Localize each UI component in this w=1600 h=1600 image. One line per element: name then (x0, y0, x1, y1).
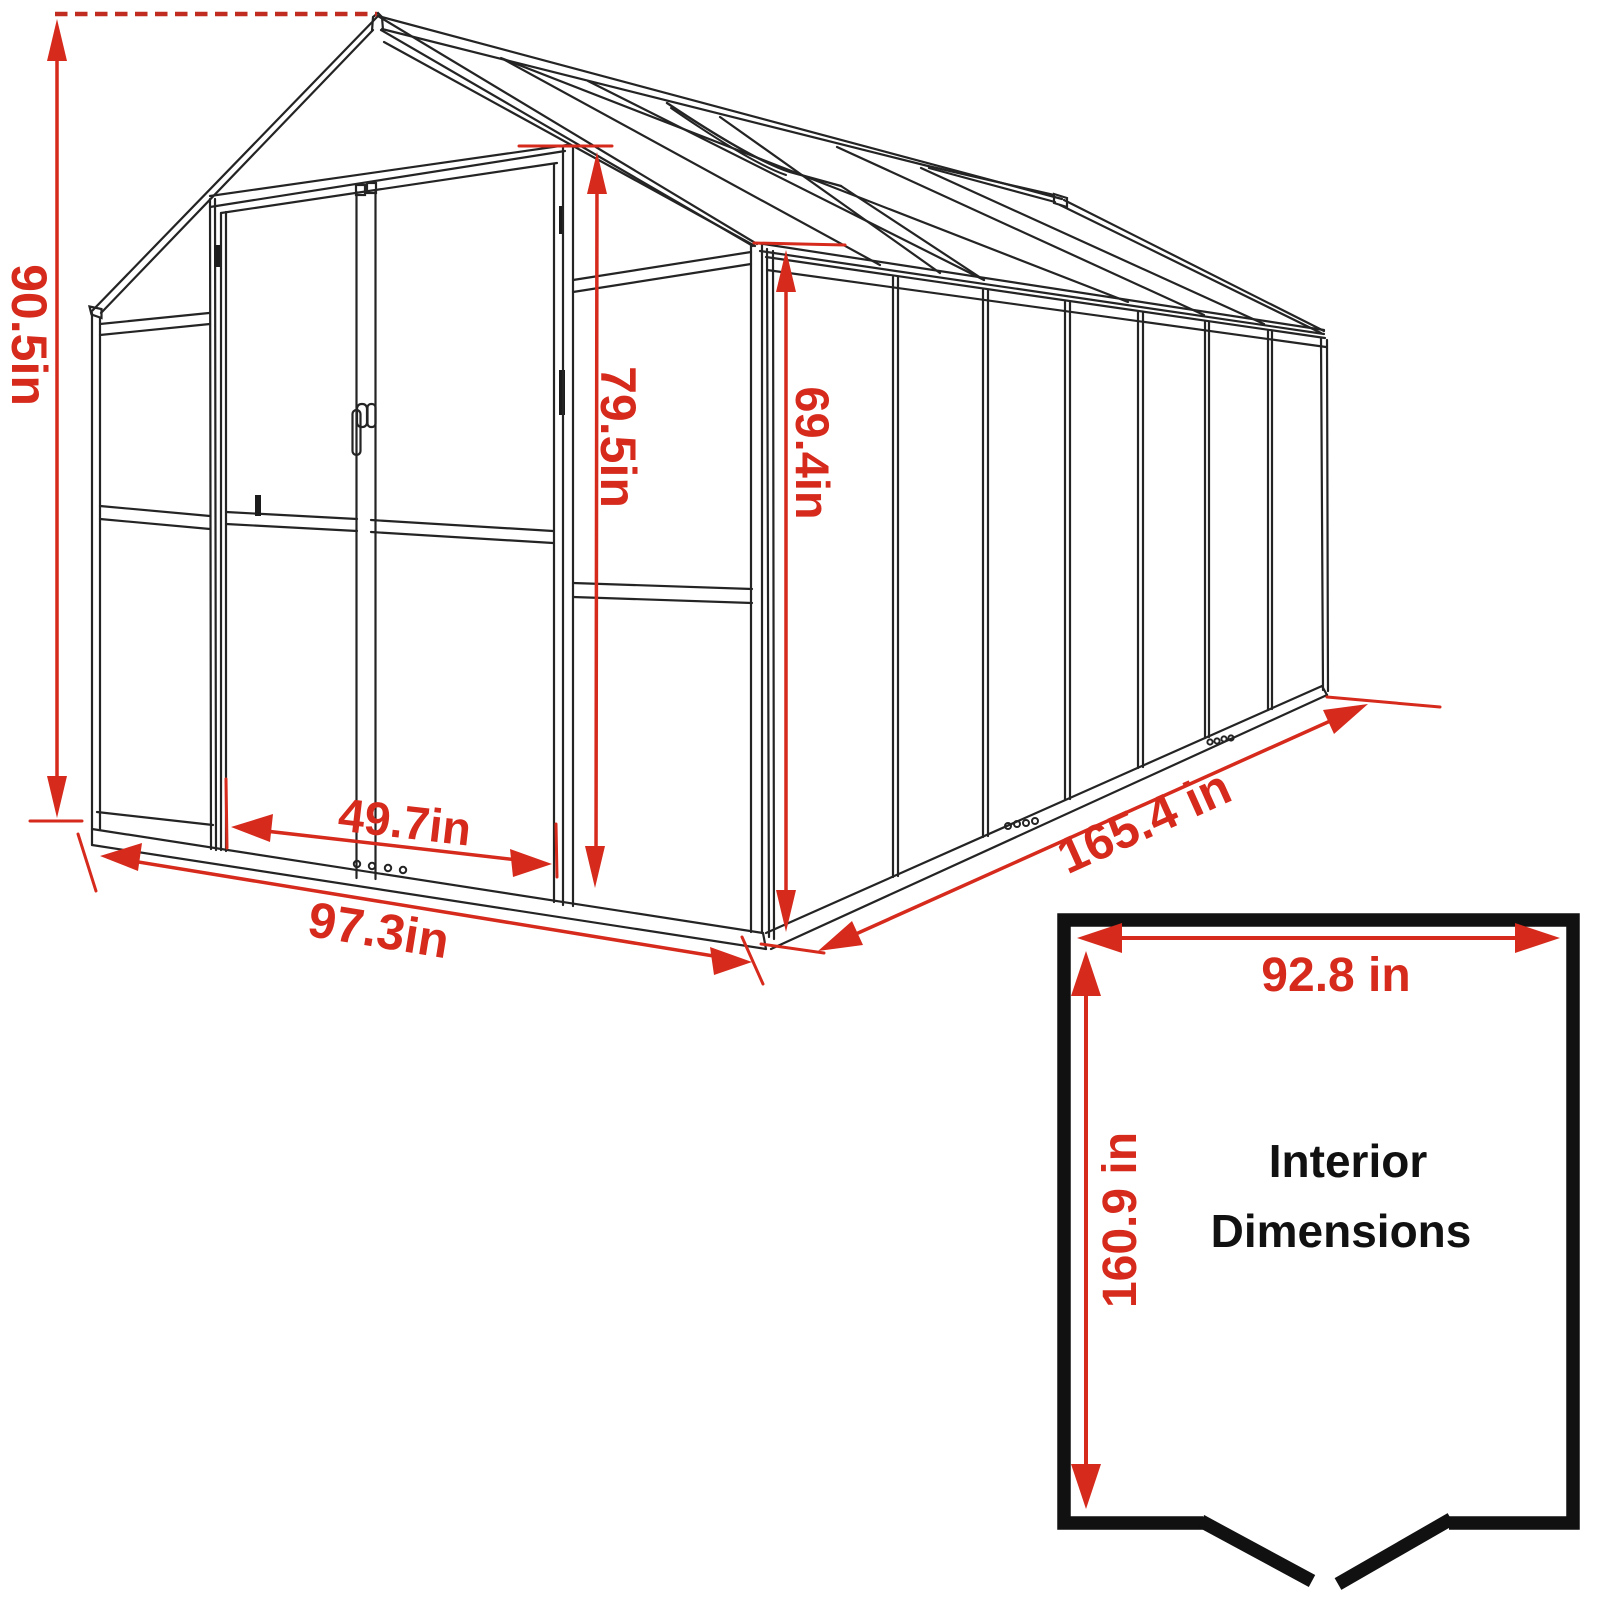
svg-text:165.4 in: 165.4 in (1049, 758, 1239, 884)
svg-text:Dimensions: Dimensions (1211, 1205, 1472, 1257)
svg-text:79.5in: 79.5in (590, 366, 646, 508)
svg-text:97.3in: 97.3in (304, 891, 453, 969)
svg-text:69.4in: 69.4in (786, 386, 839, 519)
svg-text:90.5in: 90.5in (1, 264, 57, 406)
svg-text:92.8 in: 92.8 in (1261, 949, 1410, 1002)
svg-text:Interior: Interior (1269, 1135, 1428, 1187)
svg-text:160.9 in: 160.9 in (1094, 1132, 1147, 1308)
